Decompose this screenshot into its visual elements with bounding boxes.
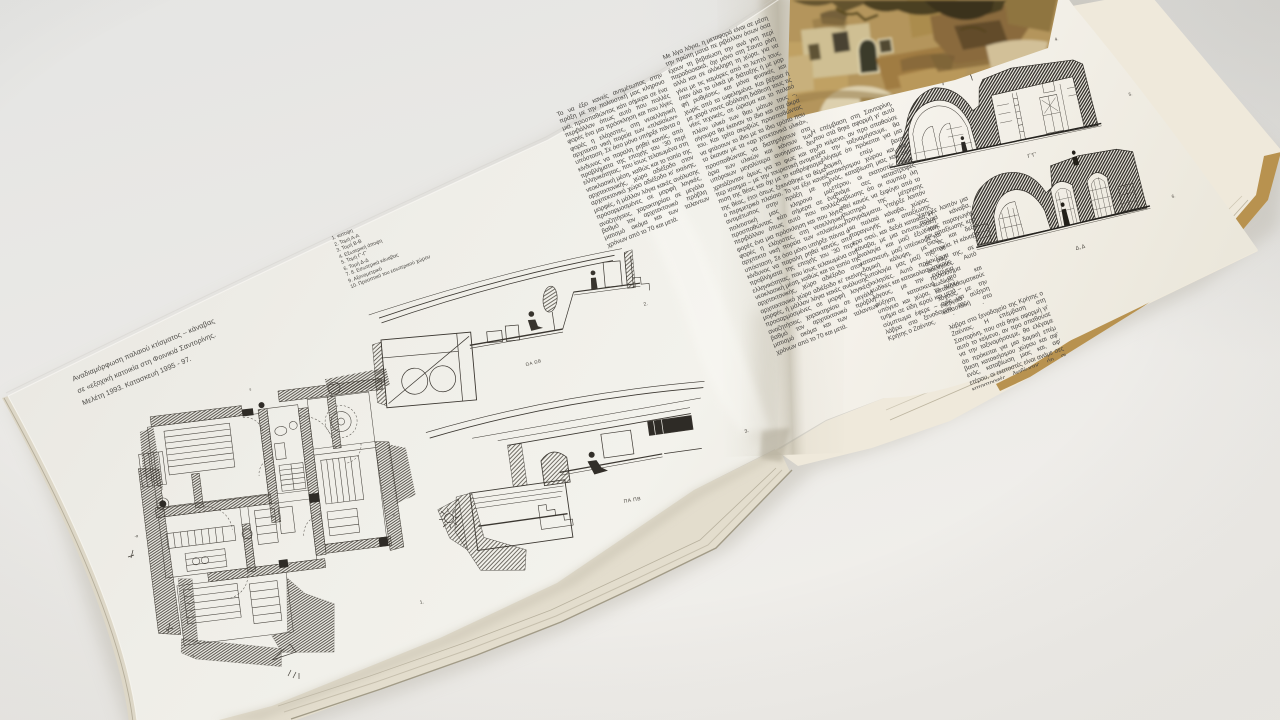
svg-text:-α: -α bbox=[134, 533, 139, 538]
svg-text:ΩΑ ΩΒ: ΩΑ ΩΒ bbox=[525, 358, 542, 367]
svg-text:Γ'Γ': Γ'Γ' bbox=[1027, 152, 1038, 160]
svg-text:3.: 3. bbox=[744, 428, 750, 435]
svg-text:6.: 6. bbox=[1171, 193, 1176, 199]
svg-text:ΠΑ ΠΒ: ΠΑ ΠΒ bbox=[623, 496, 641, 505]
svg-text:Δ,Δ: Δ,Δ bbox=[1075, 244, 1086, 252]
svg-text:ε: ε bbox=[249, 386, 252, 391]
svg-text:1.: 1. bbox=[419, 599, 424, 606]
svg-text:5.: 5. bbox=[1128, 91, 1133, 97]
svg-text:4.: 4. bbox=[1054, 36, 1059, 42]
